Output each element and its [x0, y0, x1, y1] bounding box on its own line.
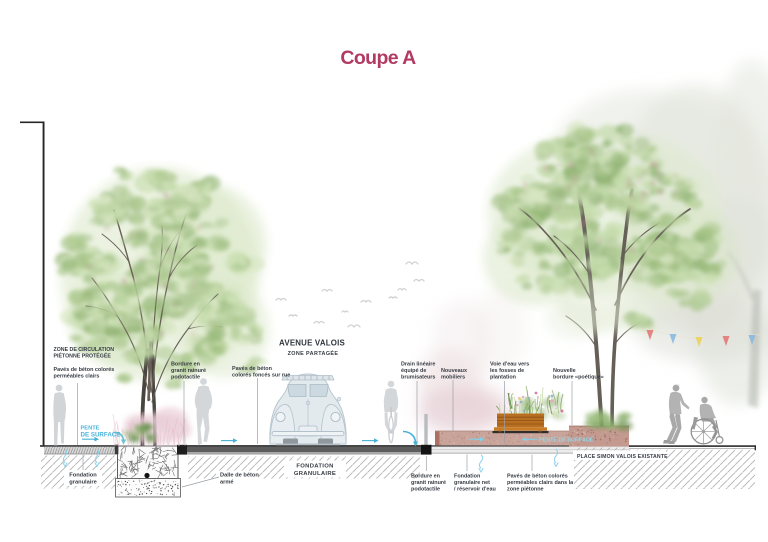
- svg-text:plantation: plantation: [490, 375, 516, 381]
- svg-text:FONDATION: FONDATION: [296, 464, 333, 470]
- svg-text:Coupe A: Coupe A: [340, 47, 416, 69]
- svg-text:granit rainuré: granit rainuré: [171, 368, 206, 374]
- svg-text:Voie d'eau vers: Voie d'eau vers: [490, 362, 529, 368]
- svg-text:brumisateurs: brumisateurs: [401, 375, 435, 381]
- svg-text:PLACE SIMON VALOIS EXISTANTE: PLACE SIMON VALOIS EXISTANTE: [577, 454, 668, 460]
- svg-text:armé: armé: [220, 480, 234, 486]
- svg-text:perméables clairs dans la: perméables clairs dans la: [507, 480, 574, 486]
- svg-text:ZONE PARTAGÉE: ZONE PARTAGÉE: [288, 349, 339, 357]
- svg-text:granulaire: granulaire: [69, 480, 97, 486]
- svg-text:Nouveaux: Nouveaux: [441, 368, 467, 374]
- svg-text:colorés foncés sur rue: colorés foncés sur rue: [232, 373, 290, 379]
- svg-text:granulaire net: granulaire net: [454, 480, 490, 486]
- svg-text:Nouvelle: Nouvelle: [553, 368, 576, 374]
- svg-text:Pavés de béton colorés: Pavés de béton colorés: [507, 474, 568, 480]
- svg-text:PIÉTONNE PROTÉGÉE: PIÉTONNE PROTÉGÉE: [54, 352, 112, 360]
- svg-text:perméables clairs: perméables clairs: [54, 374, 100, 380]
- svg-text:les fosses de: les fosses de: [490, 368, 524, 374]
- svg-text:Fondation: Fondation: [454, 474, 480, 480]
- svg-text:Bordure en: Bordure en: [411, 474, 440, 480]
- svg-text:GRANULAIRE: GRANULAIRE: [294, 471, 336, 477]
- svg-text:PENTE DE SURFACE: PENTE DE SURFACE: [539, 438, 594, 444]
- svg-text:Pavés de béton colorés: Pavés de béton colorés: [54, 367, 115, 373]
- svg-text:ZONE DE CIRCULATION: ZONE DE CIRCULATION: [54, 347, 115, 353]
- svg-text:Dalle de béton: Dalle de béton: [220, 473, 259, 479]
- svg-text:Drain linéaire: Drain linéaire: [401, 362, 435, 368]
- svg-text:bordure «poétique»: bordure «poétique»: [553, 375, 604, 381]
- svg-text:Fondation: Fondation: [69, 473, 97, 479]
- svg-text:podotactile: podotactile: [171, 375, 200, 381]
- svg-text:Bordure en: Bordure en: [171, 362, 200, 368]
- svg-text:/ réservoir d'eau: / réservoir d'eau: [454, 487, 496, 493]
- svg-text:AVENUE VALOIS: AVENUE VALOIS: [279, 339, 345, 348]
- svg-text:mobiliers: mobiliers: [441, 375, 465, 381]
- svg-text:podotactile: podotactile: [411, 487, 440, 493]
- svg-text:granit rainuré: granit rainuré: [411, 480, 446, 486]
- svg-text:DE SURFACE: DE SURFACE: [81, 432, 121, 439]
- svg-text:zone piétonne: zone piétonne: [507, 487, 544, 493]
- svg-text:Pavés de béton: Pavés de béton: [232, 366, 272, 372]
- svg-text:équipé de: équipé de: [401, 368, 426, 374]
